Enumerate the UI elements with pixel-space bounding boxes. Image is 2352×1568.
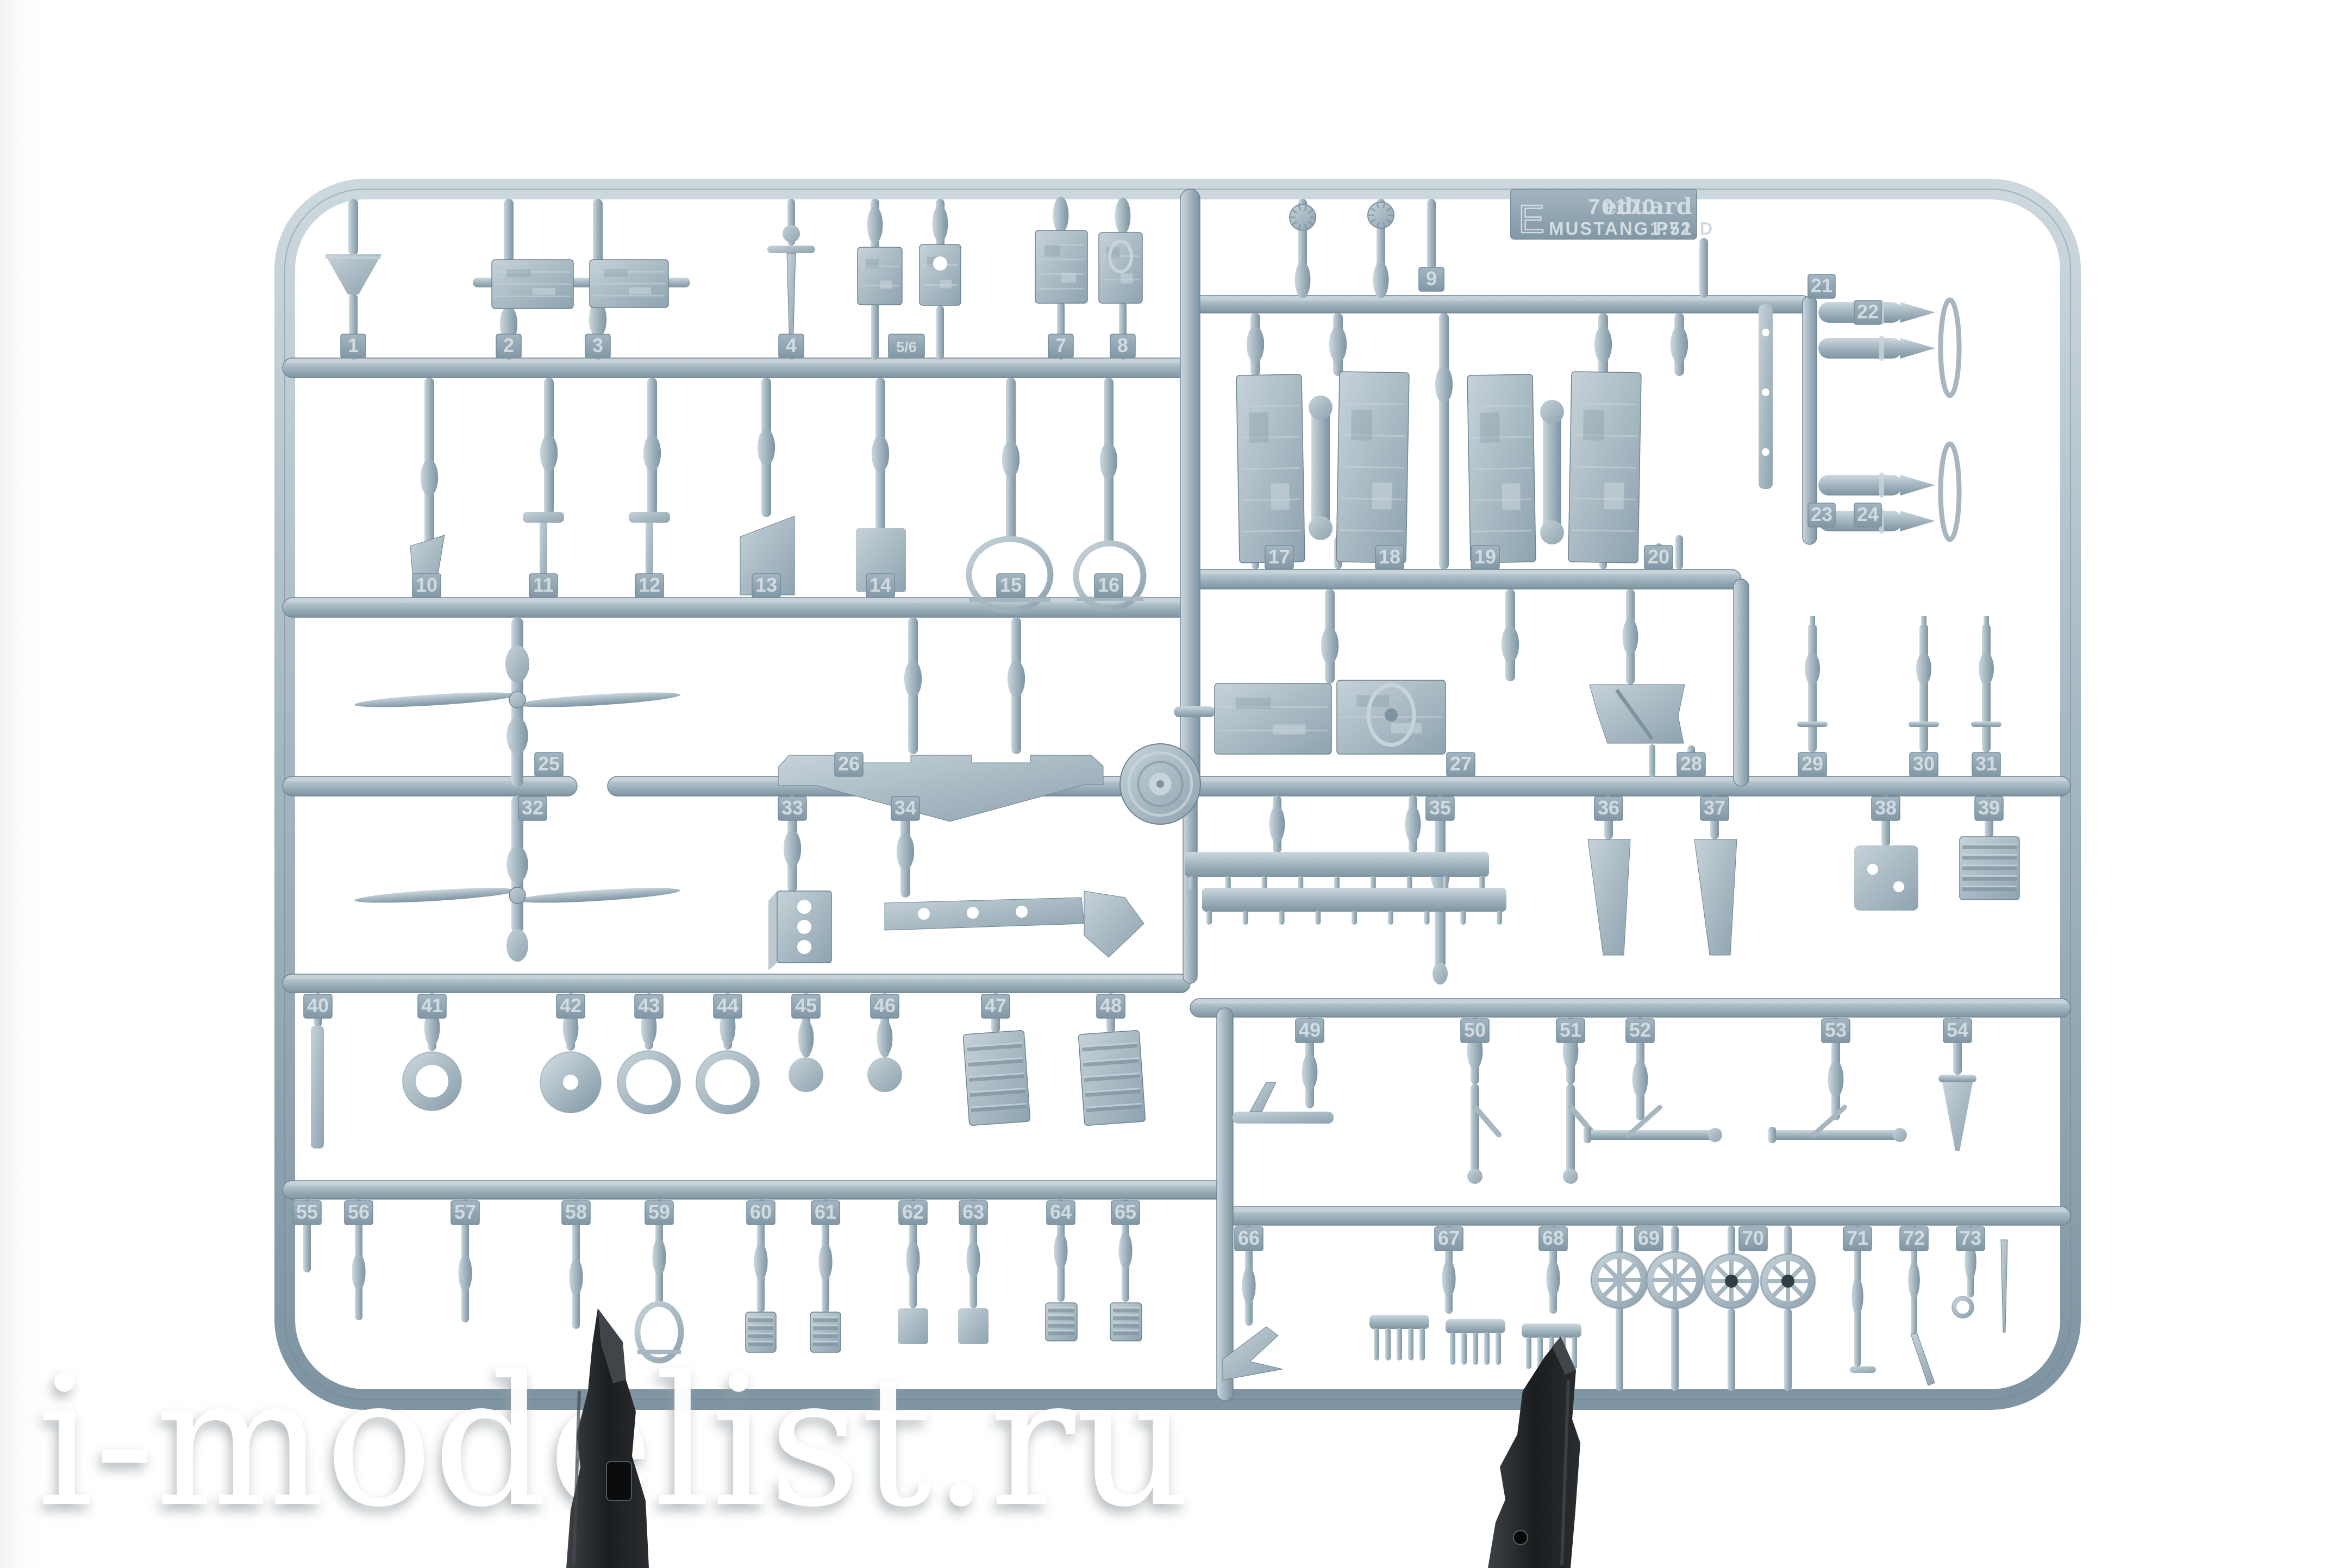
molded-part [1762, 388, 1769, 396]
sprue-gate [1675, 535, 1683, 569]
connector-rod [1174, 706, 1215, 717]
sprue-gate [1439, 313, 1449, 569]
part-number-tab: 70 [1739, 1227, 1767, 1251]
molded-part-slab [1236, 374, 1305, 563]
gate-bulge [1100, 443, 1117, 480]
sprue-gate [1728, 1226, 1735, 1255]
tab-number: 28 [1680, 752, 1702, 775]
molded-part [1762, 448, 1769, 456]
part-number-tab: 41 [418, 994, 446, 1018]
runner-vertical [1180, 189, 1200, 786]
gate-bulge [1502, 626, 1519, 663]
sprue-gate [1784, 1226, 1792, 1255]
molded-part [783, 225, 800, 242]
label-brand: eduard [1603, 193, 1692, 219]
molded-part-slab [1336, 372, 1409, 563]
gate-bulge [1321, 627, 1338, 664]
gate-bulge [754, 1243, 767, 1280]
label-scale: 1:72 [1650, 218, 1692, 239]
molded-part [767, 246, 815, 253]
tab-number: 9 [1426, 267, 1437, 290]
tab-number: 27 [1450, 752, 1472, 775]
tab-number: 68 [1542, 1227, 1564, 1249]
molded-part [629, 512, 670, 523]
tab-number: 31 [1975, 752, 1997, 775]
photo-edge-shading [0, 0, 49, 1568]
part-number-tab: 57 [451, 1201, 479, 1225]
gate-bulge [897, 833, 914, 870]
part-number-tab: 27 [1447, 752, 1475, 776]
tab-number: 17 [1268, 545, 1290, 568]
tab-number: 58 [565, 1201, 587, 1223]
louver-grille-part [1960, 837, 2019, 900]
spoked-wheel-part [1761, 1254, 1815, 1308]
tab-number: 60 [750, 1201, 772, 1223]
part-number-tab: 9 [1419, 267, 1444, 291]
part-number-tab: 62 [899, 1201, 927, 1225]
tab-number: 24 [1857, 503, 1879, 525]
tab-number: 42 [560, 994, 581, 1017]
tab-number: 26 [838, 752, 860, 775]
molded-part [967, 907, 979, 919]
part-number-tab: 66 [1235, 1227, 1263, 1251]
tab-number: 32 [522, 796, 543, 819]
tab-number: 63 [962, 1201, 984, 1223]
runner-vertical [1217, 1008, 1233, 1401]
tab-number: 12 [639, 574, 660, 596]
tab-number: 71 [1847, 1227, 1868, 1249]
part-number-tab: 42 [556, 994, 585, 1018]
molded-part [789, 1057, 823, 1092]
gate-bulge [906, 1241, 919, 1278]
knurled-knob-part [1290, 204, 1316, 230]
part-number-tab: 17 [1265, 545, 1293, 569]
part-number-tab: 60 [747, 1201, 775, 1225]
tab-number: 43 [638, 994, 660, 1017]
part-number-tab: 65 [1111, 1201, 1140, 1225]
part-number-tab: 18 [1375, 545, 1404, 569]
part-number-tab: 64 [1047, 1201, 1075, 1225]
gate-bulge [506, 846, 528, 883]
part-number-tab: 5/6 [889, 334, 924, 358]
gate-bulge [1054, 1232, 1067, 1269]
knurled-knob-part [1368, 202, 1394, 228]
gate-bulge [1851, 1278, 1863, 1315]
tab-number: 4 [786, 334, 797, 356]
gate-bulge [1671, 326, 1688, 363]
tab-number: 37 [1704, 796, 1725, 819]
gate-bulge [1247, 326, 1264, 363]
part-number-tab: 11 [529, 574, 558, 598]
tab-number: 3 [592, 334, 603, 356]
part-number-tab: 3 [585, 334, 610, 358]
gate-bulge [877, 1020, 893, 1057]
clamp-right-hole [1513, 1531, 1528, 1545]
part-number-tab: 67 [1435, 1227, 1463, 1251]
gate-bulge [506, 717, 528, 754]
sprue-gate [348, 199, 358, 255]
part-number-tab: 56 [345, 1201, 373, 1225]
molded-part-slab [492, 260, 573, 309]
box-part [768, 891, 831, 970]
part-number-tab: 7 [1048, 334, 1073, 358]
part-number-tab: 52 [1626, 1019, 1654, 1043]
tab-number: 39 [1978, 796, 2000, 819]
part-number-tab: 73 [1956, 1227, 1985, 1251]
tab-number: 8 [1117, 334, 1128, 356]
part-number-tab: 53 [1822, 1019, 1850, 1043]
sprue-gate [1649, 744, 1655, 777]
tab-number: 30 [1913, 752, 1935, 775]
part-number-tab: 48 [1097, 994, 1125, 1018]
tab-number: 59 [648, 1201, 670, 1223]
part-number-tab: 63 [959, 1201, 987, 1225]
tab-number: 11 [533, 574, 554, 596]
part-number-tab: 36 [1594, 796, 1623, 820]
tab-number: 19 [1474, 545, 1496, 568]
tab-number: 62 [902, 1201, 924, 1223]
h-connector-part [1540, 400, 1564, 544]
tab-number: 1 [348, 334, 359, 356]
gate-bulge [1908, 1262, 1920, 1299]
tab-number: 51 [1560, 1019, 1581, 1041]
molded-part-slab [1215, 683, 1331, 754]
part-number-tab: 31 [1972, 752, 2000, 776]
spoked-wheel-part [1704, 1254, 1759, 1308]
part-number-tab: 30 [1910, 752, 1938, 776]
runner-highlight [287, 600, 1186, 603]
tab-number: 7 [1055, 334, 1066, 356]
tab-number: 70 [1742, 1227, 1764, 1249]
molded-part-slab [1568, 372, 1641, 563]
part-number-tab: 55 [293, 1201, 321, 1225]
louver-grille-part [1110, 1303, 1142, 1341]
molded-part [1433, 963, 1448, 984]
part-number-tab: 25 [535, 752, 563, 776]
gate-bulge [872, 436, 889, 473]
sprue-gate [1728, 1308, 1735, 1391]
spoked-wheel-part [1591, 1252, 1648, 1308]
sprue-gate [1616, 1226, 1623, 1253]
tab-number: 67 [1438, 1227, 1460, 1249]
gate-bulge [1002, 441, 1019, 478]
part-number-tab: 20 [1644, 545, 1673, 569]
runner-highlight [1194, 572, 1737, 574]
tab-number: 61 [815, 1201, 836, 1223]
gate-bulge [1329, 326, 1347, 363]
gate-bulge [1546, 1260, 1560, 1297]
part-number-tab: 29 [1798, 752, 1826, 776]
part-number-tab: 40 [304, 994, 332, 1018]
part-number-tab: 51 [1556, 1019, 1585, 1043]
tab-number: 38 [1875, 796, 1897, 819]
tab-number: 48 [1100, 994, 1122, 1017]
molded-part-slab [590, 260, 668, 308]
part-number-tab: 4 [779, 334, 804, 358]
sprue-gate [1671, 1307, 1679, 1391]
tab-number: 16 [1098, 574, 1119, 596]
part-number-tab: 35 [1426, 796, 1454, 820]
part-number-tab: 19 [1471, 545, 1499, 569]
runner-highlight [1194, 298, 1806, 300]
gate-bulge [933, 205, 948, 242]
gate-bulge [1405, 806, 1421, 843]
part-number-tab: 33 [778, 796, 806, 820]
tab-number: 41 [421, 994, 443, 1017]
tab-number: 65 [1115, 1201, 1136, 1223]
exhaust-comb-part [1446, 1319, 1505, 1365]
molded-part-slab [919, 244, 961, 305]
part-number-tab: 50 [1461, 1019, 1489, 1043]
part-number-tab: 69 [1635, 1227, 1663, 1251]
tab-number: 69 [1638, 1227, 1660, 1249]
sprue-gate [936, 305, 944, 360]
tab-number: 72 [1903, 1227, 1925, 1249]
part-number-tab: 61 [811, 1201, 840, 1225]
part-number-tab: 13 [752, 574, 780, 598]
sprue-gate [1699, 238, 1708, 298]
molded-part-slab [1099, 233, 1142, 303]
part-number-tab: 71 [1843, 1227, 1872, 1251]
part-number-tab: 32 [518, 796, 547, 820]
molded-part [1850, 1366, 1876, 1373]
runner-vertical [1734, 579, 1749, 786]
gate-bulge [1242, 1267, 1255, 1304]
gate-bulge [1008, 660, 1025, 697]
gate-bulge [1295, 261, 1311, 298]
tab-number: 52 [1629, 1019, 1651, 1041]
gate-bulge [421, 459, 438, 496]
gate-bulge [966, 1241, 980, 1278]
gate-bulge [904, 660, 922, 697]
molded-part [933, 256, 947, 271]
gate-bulge [784, 830, 801, 867]
tab-number: 49 [1299, 1019, 1321, 1041]
part-number-tab: 38 [1872, 796, 1900, 820]
tab-number: 22 [1857, 300, 1879, 323]
tab-number: 25 [538, 752, 560, 775]
part-number-tab: 2 [496, 334, 521, 358]
molded-part [1233, 1112, 1334, 1124]
gate-bulge [758, 429, 775, 466]
molded-part-slab [858, 247, 902, 305]
runner-highlight [287, 1183, 1221, 1186]
gate-bulge [1623, 618, 1638, 655]
part-number-tab: 47 [981, 994, 1010, 1018]
tab-number: 53 [1825, 1019, 1847, 1041]
disc-part [1120, 744, 1200, 824]
part-number-tab: 49 [1296, 1019, 1324, 1043]
tab-number: 18 [1379, 545, 1400, 568]
molded-part-slab [1035, 230, 1087, 303]
part-number-tab: 58 [562, 1201, 590, 1225]
molded-part [311, 1026, 324, 1149]
part-number-tab: 39 [1975, 796, 2003, 820]
tab-number: 13 [755, 574, 777, 596]
tab-number: 15 [1000, 574, 1022, 596]
tab-number: 14 [870, 574, 891, 596]
tab-number: 57 [454, 1201, 476, 1223]
tab-number: 21 [1811, 274, 1832, 297]
eduard-label-plate: E 70170 eduard MUSTANG P51 D 1:72 [1511, 189, 1714, 241]
molded-part [1854, 845, 1918, 911]
part-number-tab: 8 [1110, 334, 1135, 358]
part-number-tab: 44 [714, 994, 742, 1018]
part-number-tab: 45 [792, 994, 820, 1018]
sprue-gate [1784, 1308, 1792, 1391]
part-number-tab: 72 [1900, 1227, 1928, 1251]
part-number-tab: 15 [997, 574, 1025, 598]
sprue-gate [1671, 1226, 1679, 1253]
gate-bulge [1435, 366, 1453, 403]
tab-number: 40 [307, 994, 329, 1017]
tab-number: 45 [795, 994, 817, 1017]
tab-number: 64 [1050, 1201, 1072, 1223]
part-number-tab: 68 [1539, 1227, 1567, 1251]
tab-number: 55 [296, 1201, 318, 1223]
part-number-tab: 26 [835, 752, 863, 776]
gate-bulge [1302, 1053, 1318, 1090]
tab-number: 66 [1238, 1227, 1260, 1249]
tab-number: 36 [1598, 796, 1619, 819]
gate-bulge [798, 1020, 814, 1057]
tab-number: 2 [503, 334, 514, 356]
gate-bulge [458, 1255, 472, 1292]
louver-grille-part [1046, 1303, 1077, 1341]
gate-bulge [1118, 1232, 1132, 1269]
tab-number: 34 [894, 796, 916, 819]
label-mark: E [1518, 198, 1544, 241]
gate-bulge [1115, 198, 1131, 235]
molded-part [867, 1057, 902, 1092]
molded-part [505, 645, 529, 682]
molded-part [1385, 708, 1398, 722]
part-number-tab: 59 [645, 1201, 673, 1225]
gate-bulge [652, 1239, 666, 1276]
gate-bulge [540, 435, 558, 472]
part-number-tab: 12 [635, 574, 664, 598]
gate-bulge [1442, 1260, 1455, 1297]
louver-grille-part [1078, 1030, 1145, 1125]
molded-part [1762, 329, 1769, 336]
part-number-tab: 34 [891, 796, 919, 820]
louver-grille-part [963, 1030, 1030, 1125]
gate-bulge [818, 1243, 832, 1280]
part-number-tab: 28 [1677, 752, 1705, 776]
part-number-tab: 43 [635, 994, 663, 1018]
scene-svg: 12345/6789101112131415161718192021222324… [0, 0, 2352, 1568]
gate-bulge [352, 1253, 365, 1290]
tab-number: 47 [985, 994, 1006, 1017]
gate-bulge [643, 435, 661, 472]
runner-highlight [1229, 1209, 2066, 1212]
tab-number: 56 [348, 1201, 370, 1223]
sprue-photo: 12345/6789101112131415161718192021222324… [0, 0, 2352, 1568]
spoked-wheel-part [1647, 1252, 1703, 1308]
tab-number: 44 [717, 994, 739, 1017]
exhaust-comb-part [1202, 888, 1506, 925]
part-number-tab: 37 [1700, 796, 1729, 820]
gate-bulge [1594, 326, 1612, 363]
tab-number: 50 [1464, 1019, 1486, 1041]
part-number-tab: 22 [1854, 300, 1881, 324]
tab-number: 35 [1429, 796, 1451, 819]
tab-number: 10 [416, 574, 437, 596]
h-connector-part [1309, 396, 1333, 540]
gate-bulge [1828, 1061, 1844, 1097]
molded-part-slab [1467, 374, 1536, 563]
part-number-tab: 1 [341, 334, 366, 358]
tab-number: 73 [1960, 1227, 1981, 1249]
tab-number: 54 [1947, 1019, 1968, 1041]
tab-number: 23 [1811, 503, 1832, 525]
molded-part [1016, 906, 1028, 918]
exhaust-comb-part [1369, 1315, 1429, 1360]
gate-bulge [1373, 261, 1389, 298]
tab-number: 46 [874, 994, 896, 1017]
runner-highlight [287, 976, 1186, 979]
molded-part [918, 908, 930, 920]
gate-bulge [1632, 1061, 1648, 1097]
part-number-tab: 14 [866, 574, 894, 598]
part-number-tab: 54 [1943, 1019, 1972, 1043]
part-number-tab: 21 [1808, 274, 1835, 298]
part-number-tab: 10 [412, 574, 441, 598]
part-number-tab: 46 [871, 994, 899, 1018]
gate-bulge [1269, 806, 1285, 843]
molded-part [1893, 881, 1904, 892]
tab-number: 33 [781, 796, 803, 819]
part-number-tab: 24 [1854, 503, 1881, 527]
runner-highlight [287, 779, 573, 781]
molded-part [523, 512, 564, 523]
tab-number: 29 [1801, 752, 1823, 775]
part-number-tab: 23 [1808, 503, 1835, 527]
gate-bulge [1053, 197, 1069, 234]
runner-highlight [1194, 1001, 2066, 1003]
tab-number: 20 [1648, 545, 1669, 568]
sprue-gate [871, 303, 879, 360]
runner-highlight [287, 360, 1186, 363]
gate-bulge [867, 206, 883, 243]
molded-part [1867, 864, 1878, 875]
clamp-left-slot [606, 1462, 631, 1501]
sprue-gate [1427, 199, 1436, 269]
part-number-tab: 16 [1094, 574, 1123, 598]
gate-bulge [569, 1259, 583, 1296]
molded-part [506, 929, 528, 962]
tab-number: 5/6 [896, 339, 917, 355]
exhaust-comb-part [1185, 852, 1489, 890]
sprue-gate [1616, 1307, 1623, 1391]
